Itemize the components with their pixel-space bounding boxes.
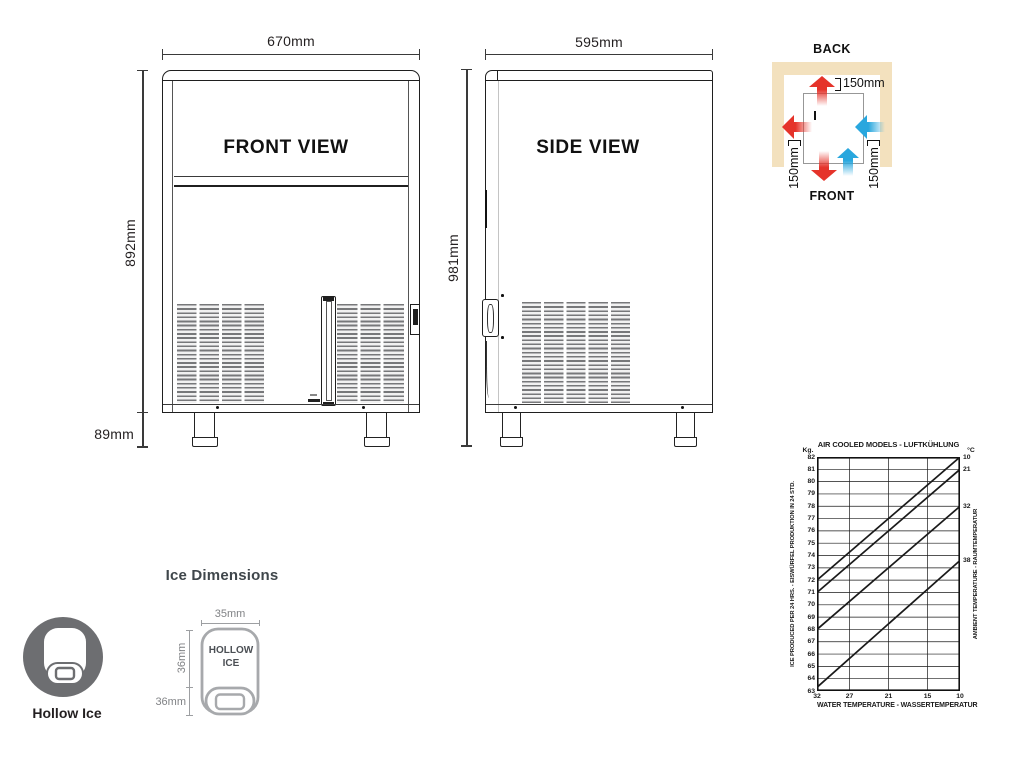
dim-tick [186,687,193,688]
front-base-line [163,404,419,405]
front-leg-left [194,413,215,438]
side-leg-left [502,413,521,438]
ice-cube-diagram [199,626,261,718]
chart-y-tick: 73 [801,564,815,571]
cool-air-arrow-left-icon [855,114,885,140]
chart-y-tick: 71 [801,589,815,596]
front-leg-dimension: 89mm [88,426,134,442]
side-cap-corner-seam [497,71,498,80]
chart-y-tick: 66 [801,651,815,658]
chart-y-tick: 69 [801,614,815,621]
front-width-dimension: 670mm [255,33,327,49]
front-view-label: FRONT VIEW [196,137,376,159]
chart-series-label: 38 [963,557,971,564]
chart-y-tick: 77 [801,515,815,522]
side-height-dimension: 981mm [445,229,461,287]
dimension-bracket [788,140,801,146]
side-foot-left [500,437,523,447]
front-leg-dimension-line [142,413,143,447]
chart-x-tick: 15 [920,693,936,700]
front-foot-right [364,437,390,447]
chart-y-tick: 82 [801,454,815,461]
side-top-cap-line [486,70,712,81]
production-chart: AIR COOLED MODELS - LUFTKÜHLUNG Kg. °C W… [782,436,1024,724]
ice-width-dim-line [201,623,259,624]
front-door-divider-upper [174,176,408,177]
front-vent-grille-right [337,304,407,403]
ice-height-dimension: 36mm [176,634,188,682]
front-foot-left [192,437,218,447]
dim-tick [186,715,193,716]
side-height-dimension-line [466,69,467,446]
ice-depth-dimension: 36mm [147,696,186,708]
front-handle-cap-top [323,297,334,301]
side-foot-right [674,437,697,447]
side-vent-grille [522,302,633,403]
ice-height-dim-line [189,630,190,716]
side-handle-grip [487,304,494,333]
chart-y-tick: 76 [801,527,815,534]
dim-tick [461,445,472,446]
chart-y-tick: 65 [801,663,815,670]
chart-right-axis-label: AMBIENT TEMPERATURE - RAUMTEMPERATUR [973,457,983,691]
chart-y-tick: 75 [801,540,815,547]
dim-tick [485,49,486,60]
front-height-dimension-line [142,70,143,413]
front-bolt-right [362,406,365,409]
chart-y-tick: 68 [801,626,815,633]
chart-y-tick: 78 [801,503,815,510]
hot-air-arrow-left-icon [782,114,812,140]
dim-tick [712,49,713,60]
ice-cube-label: HOLLOW ICE [206,645,256,670]
chart-y-tick: 74 [801,552,815,559]
hot-air-arrow-down-icon [810,151,838,181]
clearance-right-dimension: 150mm [867,147,881,189]
side-screw-bottom [501,336,504,339]
chart-y-tick: 67 [801,638,815,645]
clearance-wall-back [772,62,892,75]
hot-air-arrow-up-icon [808,76,836,106]
clearance-back-label: BACK [802,42,862,56]
front-height-dimension: 892mm [122,214,138,272]
dimension-bracket [835,78,841,91]
clearance-door-mark [814,111,816,120]
front-right-seam [408,81,409,412]
side-screw-top [501,294,504,297]
chart-y-tick: 79 [801,490,815,497]
chart-x-tick: 10 [952,693,968,700]
front-vent-grille-left [177,304,267,403]
chart-series-label: 32 [963,503,971,510]
hollow-ice-label: Hollow Ice [15,705,119,721]
dimension-bracket [867,140,880,146]
chart-y-tick: 80 [801,478,815,485]
ice-machine-spec-sheet: 670mm FRONT VIEW 892mm 89mm 595mm SIDE V… [0,0,1024,763]
cool-air-arrow-up-icon [836,148,860,176]
chart-y-tick: 64 [801,675,815,682]
chart-x-axis-label: WATER TEMPERATURE - WASSERTEMPERATUR [817,702,960,709]
side-width-dimension-line [485,54,713,55]
side-door-edge-curve [486,341,491,398]
chart-series-label: 10 [963,454,971,461]
chart-y-tick: 81 [801,466,815,473]
side-view-label: SIDE VIEW [503,137,673,159]
chart-y-tick: 70 [801,601,815,608]
front-bolt-left [216,406,219,409]
side-base-line [486,404,712,405]
side-width-dimension: 595mm [563,34,635,50]
side-leg-right [676,413,695,438]
ice-width-dimension: 35mm [205,608,255,620]
chart-left-axis-label: ICE PRODUCED PER 24 HRS. - EISWÜRFEL PRO… [790,457,800,691]
dim-tick [186,630,193,631]
chart-plot-area [817,457,960,691]
dim-tick [162,49,163,60]
chart-x-tick: 27 [842,693,858,700]
side-hinge-mark [485,190,488,228]
side-bolt-right [681,406,684,409]
ice-dimensions-title: Ice Dimensions [163,567,281,584]
front-label-marks [310,394,317,396]
side-door-seam [498,81,499,412]
clearance-top-dimension: 150mm [843,76,885,90]
dim-tick [419,49,420,60]
chart-title: AIR COOLED MODELS - LUFTKÜHLUNG [817,440,960,449]
dim-tick [137,446,148,447]
front-left-seam [172,81,173,412]
front-leg-right [366,413,387,438]
front-door-handle-inner [326,301,333,401]
front-width-dimension-line [162,54,420,55]
clearance-left-dimension: 150mm [787,147,801,189]
dim-tick [137,70,148,71]
front-door-divider-lower [174,185,408,187]
dim-tick [461,69,472,70]
chart-x-tick: 21 [881,693,897,700]
chart-series-label: 21 [963,466,971,473]
hollow-ice-icon [23,617,103,697]
chart-y-tick: 72 [801,577,815,584]
front-top-cap-line [163,70,419,81]
side-bolt-left [514,406,517,409]
front-rating-plate [308,399,320,402]
front-side-latch-inner [413,309,418,325]
clearance-front-label: FRONT [802,189,862,203]
chart-x-tick: 32 [809,693,825,700]
